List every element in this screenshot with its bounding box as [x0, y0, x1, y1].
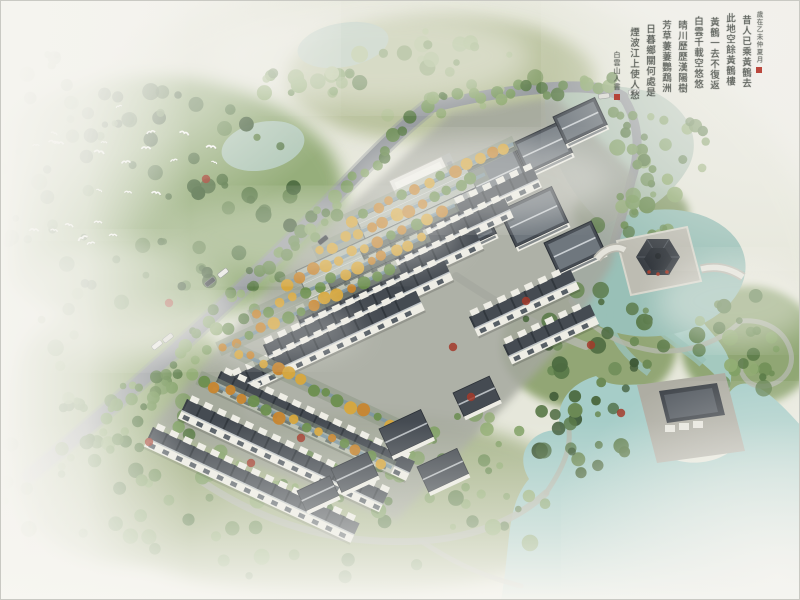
- calligraphy-poem-column-text: 黃鶴一去不復返: [707, 17, 719, 91]
- roadside-tree: [398, 126, 408, 136]
- roadside-tree: [403, 110, 416, 123]
- calligraphy-poem-column-text: 晴川歷歷漢陽樹: [675, 20, 687, 94]
- tree: [759, 373, 766, 380]
- tree: [598, 299, 605, 306]
- tree: [601, 327, 613, 339]
- tree: [550, 409, 561, 420]
- tree: [381, 109, 394, 122]
- tree: [454, 413, 461, 420]
- calligraphy-poem-column-text: 煙波江上使人愁: [627, 27, 639, 101]
- calligraphy-poem-column: 晴川歷歷漢陽樹: [675, 20, 687, 94]
- calligraphy-poem-column: 煙波江上使人愁: [627, 27, 639, 101]
- tree: [552, 356, 568, 372]
- calligraphy-poem-column-text: 昔人已乘黃鶴去: [739, 15, 751, 89]
- roadside-tree: [496, 94, 508, 106]
- calligraphy-date-column-text: 歲在乙未仲夏月: [755, 11, 763, 64]
- red-maple-tree: [449, 343, 457, 351]
- tree: [626, 303, 639, 316]
- tree: [724, 359, 737, 372]
- red-seal-icon: [756, 67, 762, 73]
- tree: [738, 358, 749, 369]
- calligraphy-inscription: 歲在乙未仲夏月昔人已乘黃鶴去此地空餘黃鶴樓黃鶴一去不復返白雲千載空悠悠晴川歷歷漢…: [625, 11, 765, 101]
- roadside-tree: [475, 93, 486, 104]
- calligraphy-signature-column-text: 白雲山人書: [612, 51, 621, 91]
- calligraphy-poem-column-text: 芳草萋萋鸚鵡洲: [659, 20, 671, 94]
- calligraphy-poem-column: 日暮鄉關何處是: [643, 24, 655, 98]
- calligraphy-signature: 白雲山人書: [610, 51, 623, 100]
- tree: [747, 348, 760, 361]
- tree: [535, 405, 548, 418]
- red-maple-tree: [522, 297, 530, 305]
- tree: [608, 362, 621, 375]
- calligraphy-poem-column: 昔人已乘黃鶴去: [739, 15, 751, 89]
- pavilion-column-icon: [656, 272, 660, 276]
- tree: [643, 360, 652, 369]
- calligraphy-signature-column: 白雲山人書: [612, 51, 621, 100]
- aerial-rendering: 歲在乙未仲夏月昔人已乘黃鶴去此地空餘黃鶴樓黃鶴一去不復返白雲千載空悠悠晴川歷歷漢…: [0, 0, 800, 600]
- mist-bottom-right: [561, 381, 800, 600]
- tree: [657, 340, 670, 353]
- calligraphy-poem-column-text: 此地空餘黃鶴樓: [723, 13, 735, 87]
- roadside-tree: [248, 281, 259, 292]
- tree: [758, 362, 772, 376]
- roadside-tree: [520, 80, 531, 91]
- tree: [630, 358, 639, 367]
- tree: [549, 392, 558, 401]
- red-maple-tree: [587, 341, 595, 349]
- calligraphy-poem-column: 黃鶴一去不復返: [707, 17, 719, 91]
- tree: [592, 282, 609, 299]
- tree: [436, 108, 446, 118]
- red-maple-tree: [467, 393, 475, 401]
- calligraphy-poem-column: 白雲千載空悠悠: [691, 16, 703, 90]
- tree: [630, 337, 639, 346]
- calligraphy-poem-column: 此地空餘黃鶴樓: [723, 13, 735, 87]
- roadside-tree: [506, 89, 516, 99]
- calligraphy-poem-column: 芳草萋萋鸚鵡洲: [659, 20, 671, 94]
- roadside-tree: [237, 290, 245, 298]
- tree: [693, 344, 706, 357]
- tree: [636, 314, 653, 331]
- calligraphy-poem-column-text: 白雲千載空悠悠: [691, 16, 703, 90]
- calligraphy-date-column: 歲在乙未仲夏月: [755, 11, 763, 73]
- tree: [643, 308, 649, 314]
- calligraphy-poem-column-text: 日暮鄉關何處是: [643, 24, 655, 98]
- red-seal-icon: [614, 94, 620, 100]
- tree: [773, 346, 780, 353]
